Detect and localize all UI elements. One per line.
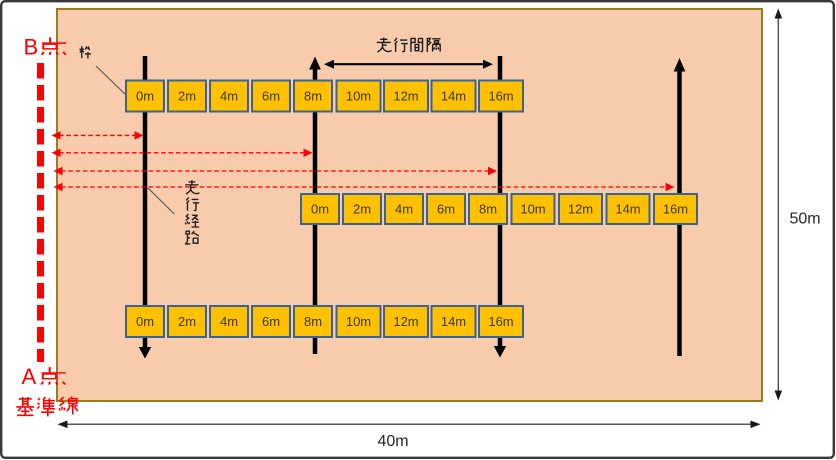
svg-text:2m: 2m [178,89,196,104]
svg-text:2m: 2m [178,314,196,329]
svg-text:4m: 4m [220,314,238,329]
svg-text:8m: 8m [304,89,322,104]
svg-text:6m: 6m [262,314,280,329]
svg-text:A: A [22,364,37,389]
svg-text:16m: 16m [663,202,688,217]
svg-text:8m: 8m [304,314,322,329]
svg-text:12m: 12m [393,314,418,329]
svg-text:B: B [24,35,39,60]
svg-text:40m: 40m [378,433,409,450]
svg-text:14m: 14m [615,202,640,217]
svg-text:14m: 14m [441,314,466,329]
svg-text:16m: 16m [488,314,513,329]
svg-text:50m: 50m [790,211,821,228]
svg-text:10m: 10m [520,202,545,217]
svg-text:12m: 12m [393,89,418,104]
svg-text:2m: 2m [353,202,371,217]
svg-text:0m: 0m [136,314,154,329]
svg-text:10m: 10m [346,314,371,329]
svg-text:4m: 4m [395,202,413,217]
svg-text:14m: 14m [441,89,466,104]
svg-text:0m: 0m [311,202,329,217]
svg-text:6m: 6m [437,202,455,217]
svg-text:8m: 8m [479,202,497,217]
svg-text:6m: 6m [262,89,280,104]
svg-text:4m: 4m [220,89,238,104]
svg-text:16m: 16m [488,89,513,104]
svg-text:12m: 12m [568,202,593,217]
svg-text:10m: 10m [346,89,371,104]
svg-text:0m: 0m [136,89,154,104]
